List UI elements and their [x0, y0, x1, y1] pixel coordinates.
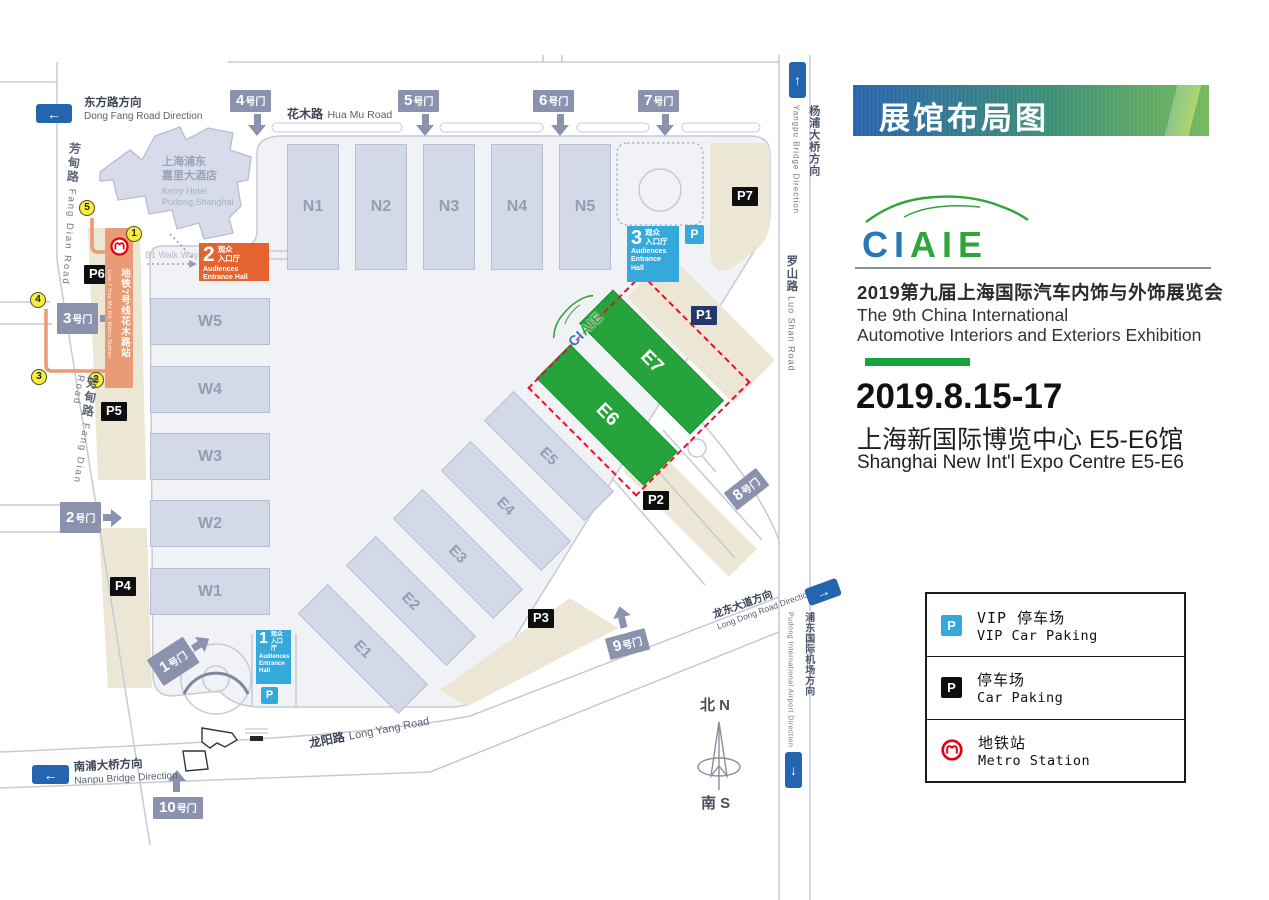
entrance-cn1: 观众 — [271, 632, 283, 638]
huamu-road-label: 花木路 Hua Mu Road — [287, 104, 392, 123]
road-label-cn: 罗山路 — [785, 255, 797, 293]
gate-5: 5号门 — [398, 90, 439, 112]
venue-name-en: Shanghai New Int'l Expo Centre E5-E6 — [857, 452, 1184, 474]
pudong-airport-arrow-icon: ↓ — [785, 752, 802, 788]
ciaie-letters: CIAIE — [862, 227, 1037, 263]
metro-icon — [941, 739, 963, 761]
road-label-en: Luo Shan Road — [786, 296, 796, 372]
kerry-hotel-label: 上海浦东嘉里大酒店 Kerry HotelPudong,Shanghai — [162, 156, 234, 208]
metro-stop-5: 5 — [79, 200, 95, 216]
hall-label: N3 — [439, 198, 459, 216]
hall-n3: N3 — [423, 144, 475, 270]
parking-icon: P — [941, 677, 962, 698]
entrance-cn2: 入口厅 — [218, 254, 241, 263]
hotel-cn2: 嘉里大酒店 — [162, 170, 217, 182]
hall-w1: W1 — [150, 568, 270, 615]
vip-parking-icon: P — [941, 615, 962, 636]
entrance-1: 1 观众入口厅 Audiences Entrance Hall — [256, 630, 291, 684]
gate-suffix: 号门 — [622, 637, 644, 652]
entrance-3: 3 观众入口厅 Audiences Entrance Hall — [627, 226, 679, 282]
logo-ci: CI — [862, 224, 910, 265]
legend-en: VIP Car Paking — [977, 628, 1098, 644]
parking-p4: P4 — [110, 577, 136, 596]
dongfang-road-label: 东方路方向 Dong Fang Road Direction — [84, 97, 202, 123]
exhibition-title-cn: 2019第九届上海国际汽车内饰与外饰展览会 — [857, 279, 1223, 305]
road-label-en: Hua Mu Road — [327, 109, 392, 121]
gate-4: 4号门 — [230, 90, 271, 112]
panel-title: 展馆布局图 — [853, 85, 1209, 138]
metro-line-en: Line 7 Hua Mu Rd. Metro Station — [106, 270, 112, 358]
exhibition-date: 2019.8.15-17 — [856, 377, 1062, 417]
hall-n4: N4 — [491, 144, 543, 270]
gate-suffix: 号门 — [75, 515, 95, 525]
hall-label: N5 — [575, 198, 595, 216]
compass-needle — [698, 722, 740, 790]
road-label-en: Pudong International Airport Direction — [786, 612, 793, 747]
logo-aie: AIE — [910, 224, 988, 265]
hall-w5: W5 — [150, 298, 270, 345]
metro-icon — [110, 237, 129, 256]
road-label-en: Dong Fang Road Direction — [84, 111, 202, 123]
exhibition-title-en2: Automotive Interiors and Exteriors Exhib… — [857, 325, 1201, 346]
logo-divider — [855, 267, 1211, 269]
luoshan-road-label: 罗山路 Luo Shan Road — [782, 255, 800, 380]
road-label-cn: 浦东国际机场方向 — [803, 612, 814, 696]
hall-n5: N5 — [559, 144, 611, 270]
hall-label: E1 — [350, 636, 375, 661]
gate-number: 2 — [66, 510, 74, 525]
hall-label: N1 — [303, 198, 323, 216]
gate-suffix: 号门 — [72, 316, 92, 326]
yangpu-direction-arrow-icon: ↑ — [789, 62, 806, 98]
green-accent-bar — [865, 358, 970, 366]
entrance-en: Audiences Entrance Hall — [631, 248, 673, 273]
hall-label: W2 — [198, 515, 222, 533]
hall-label: W3 — [198, 448, 222, 466]
entrance-number: 3 — [631, 229, 642, 247]
metro-line7-strip: 地铁7号线花木路站 Line 7 Hua Mu Rd. Metro Statio… — [105, 228, 133, 388]
road-label-cn: 东方路方向 — [84, 97, 202, 111]
hall-label: W5 — [198, 313, 222, 331]
road-label-en: Yangpu Bridge Direction — [791, 105, 800, 214]
road-label-cn: 花木路 — [287, 107, 323, 121]
legend-en: Car Paking — [977, 690, 1063, 706]
parking-p7: P7 — [732, 187, 758, 206]
gate-suffix: 号门 — [177, 805, 197, 815]
hall-w4: W4 — [150, 366, 270, 413]
gate-7-arrow-icon — [656, 114, 674, 136]
parking-p1: P1 — [691, 306, 717, 325]
metro-stop-1: 1 — [126, 226, 142, 242]
hall-w2: W2 — [150, 500, 270, 547]
gate-suffix: 号门 — [413, 98, 433, 108]
dongfang-direction-arrow-icon: ← — [36, 104, 72, 123]
gate-suffix: 号门 — [548, 98, 568, 108]
yangpu-bridge-label: 杨浦大桥方向 Yangpu Bridge Direction — [786, 105, 823, 223]
compass-south-label: 南 S — [701, 792, 730, 813]
entrance-en: Audiences Entrance Hall — [259, 654, 289, 676]
hall-label: E4 — [493, 493, 518, 518]
parking-p5: P5 — [101, 402, 127, 421]
parking-p3: P3 — [528, 609, 554, 628]
service-buildings — [183, 728, 237, 771]
entrance-cn2: 入口厅 — [645, 237, 668, 246]
gate-4-arrow-icon — [248, 114, 266, 136]
metro-stop-4: 4 — [30, 292, 46, 308]
nanpu-direction-arrow-icon: ← — [32, 765, 69, 784]
gate-number: 4 — [236, 93, 244, 108]
entrance-number: 1 — [259, 632, 268, 646]
hotel-en2: Pudong,Shanghai — [162, 197, 234, 207]
hall-n1: N1 — [287, 144, 339, 270]
legend-cn: VIP 停车场 — [977, 607, 1098, 628]
road-label-cn: 杨浦大桥方向 — [808, 105, 820, 177]
gate-number: 5 — [404, 93, 412, 108]
gate-number: 7 — [644, 93, 652, 108]
compass-north-label: 北 N — [700, 694, 730, 715]
entrance-number: 2 — [203, 246, 215, 265]
metro-line-cn: 地铁7号线花木路站 — [117, 268, 131, 358]
gate-6-arrow-icon — [551, 114, 569, 136]
gate-2-arrow-icon — [103, 514, 111, 521]
exhibition-title-en1: The 9th China International — [857, 305, 1068, 326]
gate-number: 6 — [539, 93, 547, 108]
b1-walkway-label: B1 Walk Way — [145, 250, 198, 260]
legend-cn: 地铁站 — [978, 732, 1090, 753]
gate-number: 10 — [159, 800, 176, 815]
legend-en: Metro Station — [978, 753, 1090, 769]
gate-suffix: 号门 — [653, 98, 673, 108]
road-medians — [272, 123, 760, 132]
hall-w3: W3 — [150, 433, 270, 480]
legend-cn: 停车场 — [977, 669, 1063, 690]
hall-label: N2 — [371, 198, 391, 216]
panel-title-banner: 展馆布局图 — [853, 85, 1209, 136]
hall-label: E3 — [445, 541, 470, 566]
entrance-en: Audiences Entrance Hall — [203, 266, 261, 283]
entrance-cn2: 入口厅 — [271, 639, 283, 652]
gate-6: 6号门 — [533, 90, 574, 112]
ciaie-logo: CIAIE — [862, 190, 1037, 263]
hotel-en1: Kerry Hotel — [162, 186, 207, 196]
metro-stop-3: 3 — [31, 369, 47, 385]
ciaie-car-icon — [862, 190, 1032, 226]
hall-label: E2 — [398, 588, 423, 613]
gate-suffix: 号门 — [245, 98, 265, 108]
hotel-cn1: 上海浦东 — [162, 156, 206, 168]
page: N1 N2 N3 N4 N5 W5 W4 W3 W2 W1 E1 E2 E3 E… — [0, 0, 1269, 900]
legend-row-metro: 地铁站Metro Station — [927, 719, 1184, 781]
parking-p2: P2 — [643, 491, 669, 510]
hall-label: W1 — [198, 583, 222, 601]
hall-label: W4 — [198, 381, 222, 399]
nanpu-bridge-label: 南浦大桥方向 Nanpu Bridge Direction — [73, 756, 178, 787]
legend-row-parking: P 停车场Car Paking — [927, 656, 1184, 718]
vip-parking-icon: P — [261, 687, 278, 704]
gate-number: 3 — [63, 311, 71, 326]
gate-2: 2号门 — [60, 502, 122, 533]
gate-10: 10号门 — [153, 797, 203, 819]
hall-label: E5 — [536, 443, 561, 468]
legend: P VIP 停车场VIP Car Paking P 停车场Car Paking … — [925, 592, 1186, 783]
vip-parking-icon: P — [685, 225, 704, 244]
gate-5-arrow-icon — [416, 114, 434, 136]
gate-suffix: 号门 — [168, 651, 190, 670]
venue-name-cn: 上海新国际博览中心 E5-E6馆 — [857, 420, 1183, 456]
hall-label: N4 — [507, 198, 527, 216]
entrance-2: 2 观众入口厅 Audiences Entrance Hall — [199, 243, 269, 281]
hall-n2: N2 — [355, 144, 407, 270]
road-label-cn: 芳甸路 — [65, 142, 82, 185]
gate-7: 7号门 — [638, 90, 679, 112]
legend-row-vip-parking: P VIP 停车场VIP Car Paking — [927, 594, 1184, 656]
